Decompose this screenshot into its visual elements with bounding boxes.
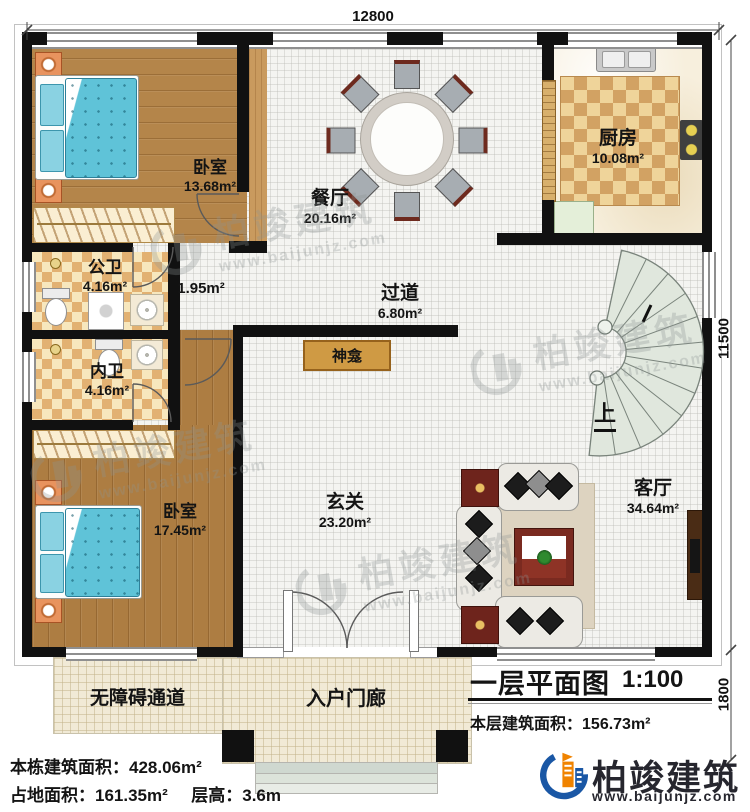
wall [168,339,180,420]
blanket [65,78,137,178]
wall [168,420,180,430]
window [497,647,655,661]
room-name: 公卫 [60,258,150,278]
pull-light-icon [50,344,61,355]
cushion [506,607,534,635]
wall [22,647,66,657]
shrine-label: 神龛 [332,345,362,366]
room-area: 1.95m² [156,280,246,298]
dining-chair [394,192,420,221]
room-area: 34.64m² [598,500,708,517]
floor-height-label: 层高： [191,786,242,805]
nightstand [35,52,62,77]
room-name: 卧室 [150,158,270,178]
room-area: 20.16m² [270,210,390,227]
sliding-door [542,80,556,202]
dining-chair [394,60,420,89]
wardrobe [33,207,175,243]
nightstand [35,480,62,505]
coffee-table [514,528,574,586]
dimension-top: 12800 [338,8,408,25]
kitchen-sink-icon [596,46,656,72]
dimension-right: 11500 [716,309,733,369]
fridge-icon [554,201,594,234]
wall [197,647,237,657]
window [22,352,36,402]
wall [677,32,712,45]
dining-table-top [370,102,444,176]
porch-label: 入户门廊 [222,688,470,712]
wall [197,32,273,45]
porch-column [222,730,254,762]
wall [22,330,180,339]
land-area-label: 占地面积： [10,786,95,805]
sink-basin [628,51,651,68]
cabinet-strip [249,45,267,241]
wardrobe [33,430,175,459]
wall [437,647,497,657]
floor-area-note: 本层建筑面积：156.73m² [470,710,651,734]
floor-area-label: 本层建筑面积： [470,716,582,733]
brand-website: www.baijunjz.com [592,788,737,804]
room-area: 23.20m² [295,514,395,531]
entry-door-leaf [409,590,419,652]
wall [387,32,443,45]
entry-step [255,783,438,794]
room-name: 卧室 [125,502,235,522]
land-area-note: 占地面积：161.35m² 层高：3.6m [10,781,281,806]
sofa [495,596,583,648]
door-sill [237,647,284,658]
side-table [461,606,499,644]
room-area: 4.16m² [60,278,150,295]
dining-table [360,92,454,186]
bedroom-corridor-floor [180,330,233,437]
wall [233,325,243,657]
plant-icon [537,550,552,565]
sofa [497,463,579,511]
room-area: 17.45m² [125,522,235,539]
window [66,647,197,661]
wall [542,42,554,80]
side-table [461,469,499,507]
room-label-bedroom1: 卧室 13.68m² [150,158,270,195]
floor-plan-page: 神龛 [0,0,750,812]
window [22,32,712,49]
land-area-value: 161.35m² [95,786,168,805]
room-label-living: 客厅 34.64m² [598,478,708,517]
cushion [545,472,573,500]
wall [22,32,47,45]
room-label-small-hall: 1.95m² [156,280,246,298]
floor-height-value: 3.6m [242,786,281,805]
title-underline-thin [468,703,712,704]
porch-column [436,730,468,762]
room-label-ensuite-bath: 内卫 4.16m² [62,362,152,399]
building-area-note: 本栋建筑面积：428.06m² [10,753,202,778]
room-name: 过道 [350,283,450,305]
tv-icon [690,539,700,573]
room-label-entry-hall: 玄关 23.20m² [295,492,395,531]
wall [22,420,133,430]
wall [22,243,133,252]
pillow [40,512,64,551]
wardrobe-rod [37,223,171,225]
plan-title: 一层平面图 [470,662,610,701]
room-label-kitchen: 厨房 10.08m² [558,128,678,167]
building-area-value: 428.06m² [129,758,202,777]
cushion [536,607,564,635]
room-name: 厨房 [558,128,678,150]
entry-door-leaf [283,590,293,652]
room-label-bedroom2: 卧室 17.45m² [125,502,235,539]
cushion [465,510,493,538]
room-label-dining: 餐厅 20.16m² [270,188,390,227]
sofa [456,505,502,611]
pillow [40,84,64,126]
wall [497,233,712,245]
cushion [463,537,491,565]
room-area: 10.08m² [558,150,678,167]
room-name: 入户门廊 [222,688,470,712]
wall [655,647,712,657]
window [702,252,716,318]
window [22,262,36,312]
toilet-icon [45,298,67,326]
room-label-corridor: 过道 6.80m² [350,283,450,322]
shrine-shelf: 神龛 [303,340,391,371]
room-name: 内卫 [62,362,152,382]
wall [22,32,32,657]
brand-logo-icon [540,748,588,804]
nightstand [35,178,62,203]
dining-chair [459,128,488,154]
room-area: 6.80m² [350,305,450,322]
dining-chair [327,128,356,154]
sink-basin [602,51,625,68]
pillow [40,554,64,593]
title-underline [468,698,712,701]
wall [229,241,267,253]
building-area-label: 本栋建筑面积： [10,758,129,777]
room-name: 客厅 [598,478,708,500]
floor-area-value: 156.73m² [582,716,651,733]
cushion [465,564,493,592]
pillow [40,130,64,172]
room-area: 4.16m² [62,382,152,399]
plan-scale: 1:100 [622,666,683,694]
wardrobe-rod [37,443,171,445]
room-area: 13.68m² [150,178,270,195]
stairs-up-label: 上 [594,396,616,432]
dimension-porch: 1800 [716,665,733,725]
washing-machine-icon [88,292,124,330]
room-label-public-bath: 公卫 4.16m² [60,258,150,295]
ramp-label: 无障碍通道 [53,688,222,710]
washbasin-icon [130,294,164,326]
nightstand [35,598,62,623]
room-name: 餐厅 [270,188,390,210]
room-name: 无障碍通道 [53,688,222,710]
wall [702,32,712,657]
stove-icon [680,120,703,160]
bed [35,75,139,180]
room-name: 玄关 [295,492,395,514]
wall [537,32,568,45]
wall [233,325,458,337]
